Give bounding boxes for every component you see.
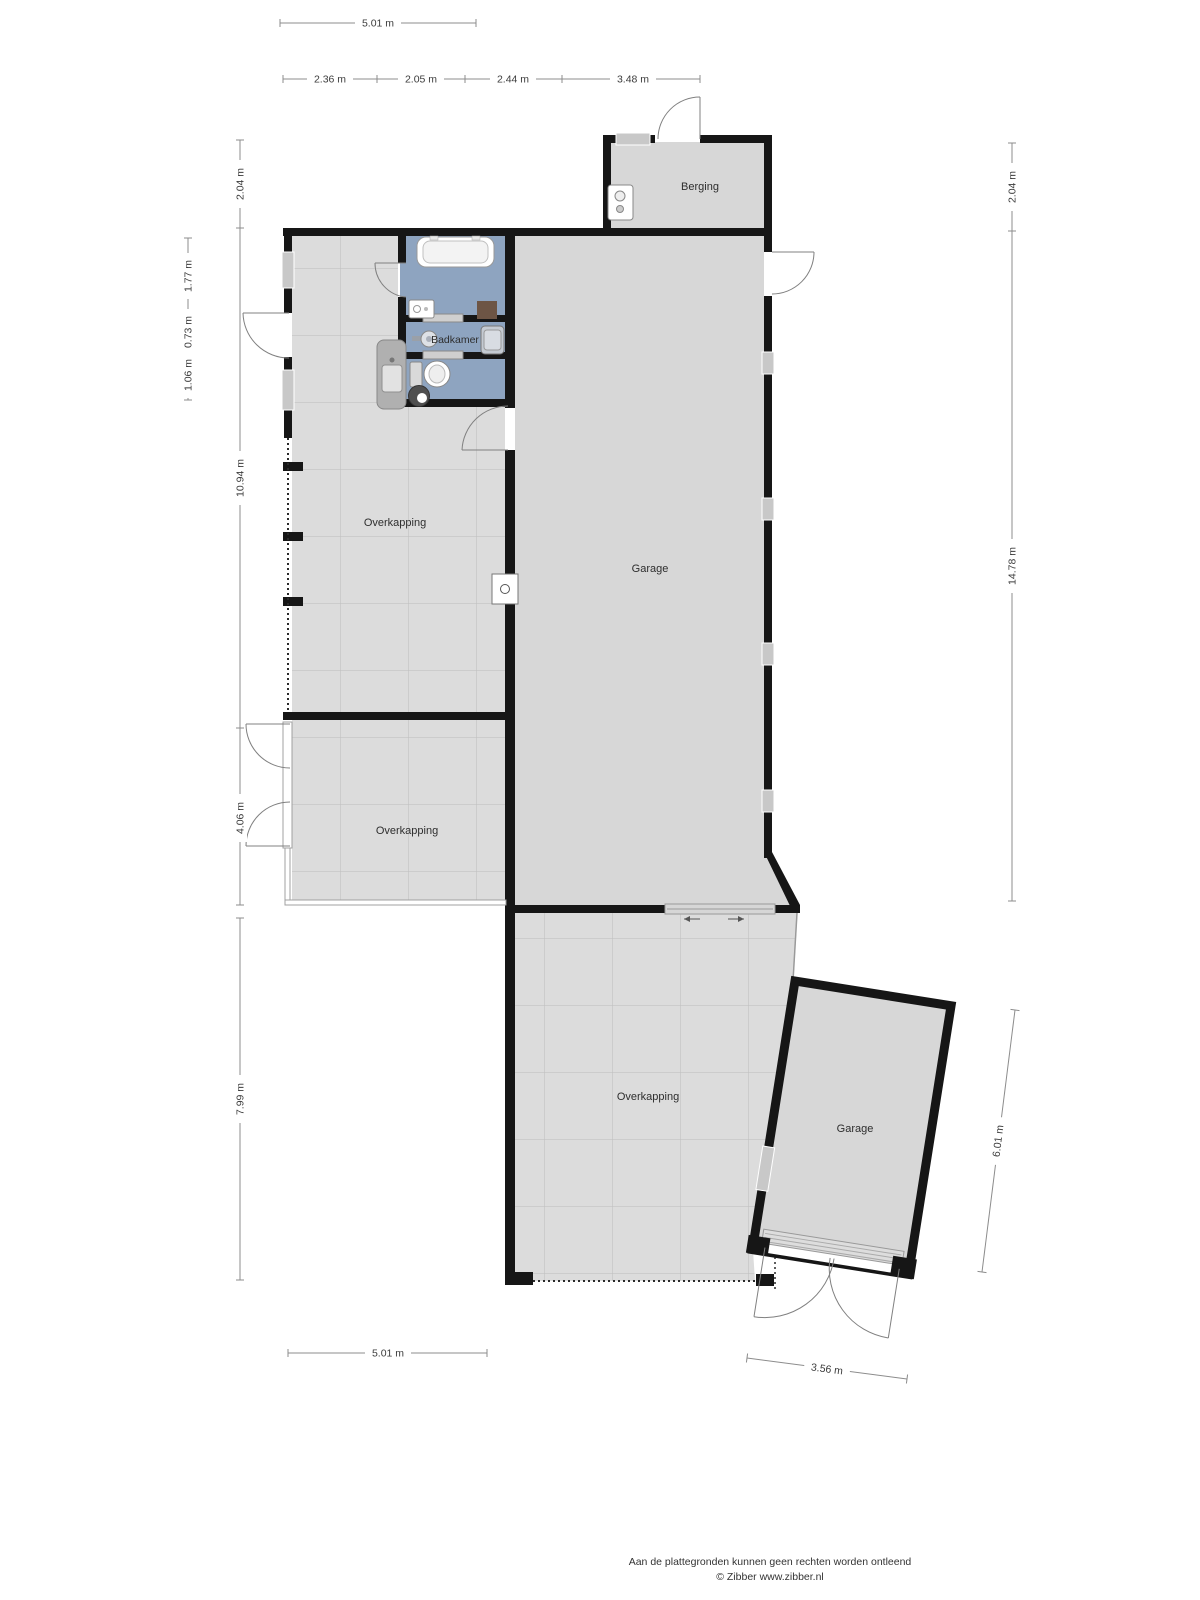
label-overkapping-top: Overkapping [364,517,426,529]
washer-icon [409,300,434,318]
svg-text:2.04 m: 2.04 m [235,168,247,200]
dim-right-top: 2.04 m [1005,163,1019,211]
toilet-icon [410,361,450,387]
room-fills [292,142,797,1281]
footer-disclaimer: Aan de plattegronden kunnen geen rechten… [629,1556,912,1568]
svg-text:4.06 m: 4.06 m [235,802,247,834]
svg-text:1.77 m: 1.77 m [183,260,195,292]
dim-left-mid: 4.06 m [233,794,247,842]
dim-seg4: 3.48 m [610,72,656,86]
door-panel [423,351,463,359]
floor-plan-svg: Berging Badkamer Overkapping Garage Over… [0,0,1200,1600]
sink-icon [481,326,504,354]
dim-bottom-garage: 3.56 m [803,1359,850,1379]
counter-icon [377,340,406,409]
bathtub-icon [417,236,494,267]
svg-text:2.36 m: 2.36 m [314,74,346,86]
cabinet-icon [477,301,497,319]
window [762,498,774,520]
boiler-icon [608,185,633,220]
svg-text:6.01 m: 6.01 m [991,1124,1007,1158]
dim-seg1: 2.36 m [307,72,353,86]
door-garage-right [772,252,814,294]
floor-plan-page: Berging Badkamer Overkapping Garage Over… [0,0,1200,1600]
svg-text:1.06 m: 1.06 m [183,359,195,391]
dim-top-total: 5.01 m [355,16,401,30]
svg-text:7.99 m: 7.99 m [235,1083,247,1115]
door-left-entry [243,313,289,358]
dim-right-garage: 6.01 m [988,1116,1008,1165]
label-overkapping-bottom: Overkapping [617,1091,679,1103]
window [282,252,294,288]
window [616,133,650,145]
footer-credit: © Zibber www.zibber.nl [716,1571,824,1583]
svg-text:2.05 m: 2.05 m [405,74,437,86]
post [283,532,303,541]
footer: Aan de plattegronden kunnen geen rechten… [629,1556,912,1583]
svg-text:3.48 m: 3.48 m [617,74,649,86]
door-frame [283,722,292,848]
label-overkapping-mid: Overkapping [376,825,438,837]
svg-text:2.44 m: 2.44 m [497,74,529,86]
label-berging: Berging [681,181,719,193]
label-garage-main: Garage [632,563,669,575]
post [283,597,303,606]
window [762,643,774,665]
svg-text:5.01 m: 5.01 m [372,1348,404,1360]
dim-left-top: 2.04 m [233,160,247,208]
dim-seg2: 2.05 m [398,72,444,86]
dim-bottom-left: 5.01 m [365,1346,411,1360]
svg-text:5.01 m: 5.01 m [362,18,394,30]
post [283,462,303,471]
dim-seg3: 2.44 m [490,72,536,86]
label-garage-detached: Garage [837,1123,874,1135]
dim-left-main: 10.94 m [233,451,247,505]
dim-right-main: 14.78 m [1005,539,1019,593]
window [762,352,774,374]
dim-left-in3: 1.06 m [181,352,195,398]
window [282,370,294,410]
window [762,790,774,812]
label-badkamer: Badkamer [431,334,479,346]
dim-left-in1: 1.77 m [181,253,195,299]
svg-text:2.04 m: 2.04 m [1007,171,1019,203]
room-overkapping-mid [292,720,505,903]
dim-left-in2: 0.73 m [181,309,195,355]
svg-text:0.73 m: 0.73 m [183,316,195,348]
svg-text:10.94 m: 10.94 m [235,459,247,497]
svg-text:14.78 m: 14.78 m [1007,547,1019,585]
door-berging [658,97,700,139]
dim-left-low: 7.99 m [233,1075,247,1123]
corner-basin-icon [409,386,430,407]
meter-box-icon [492,574,518,604]
